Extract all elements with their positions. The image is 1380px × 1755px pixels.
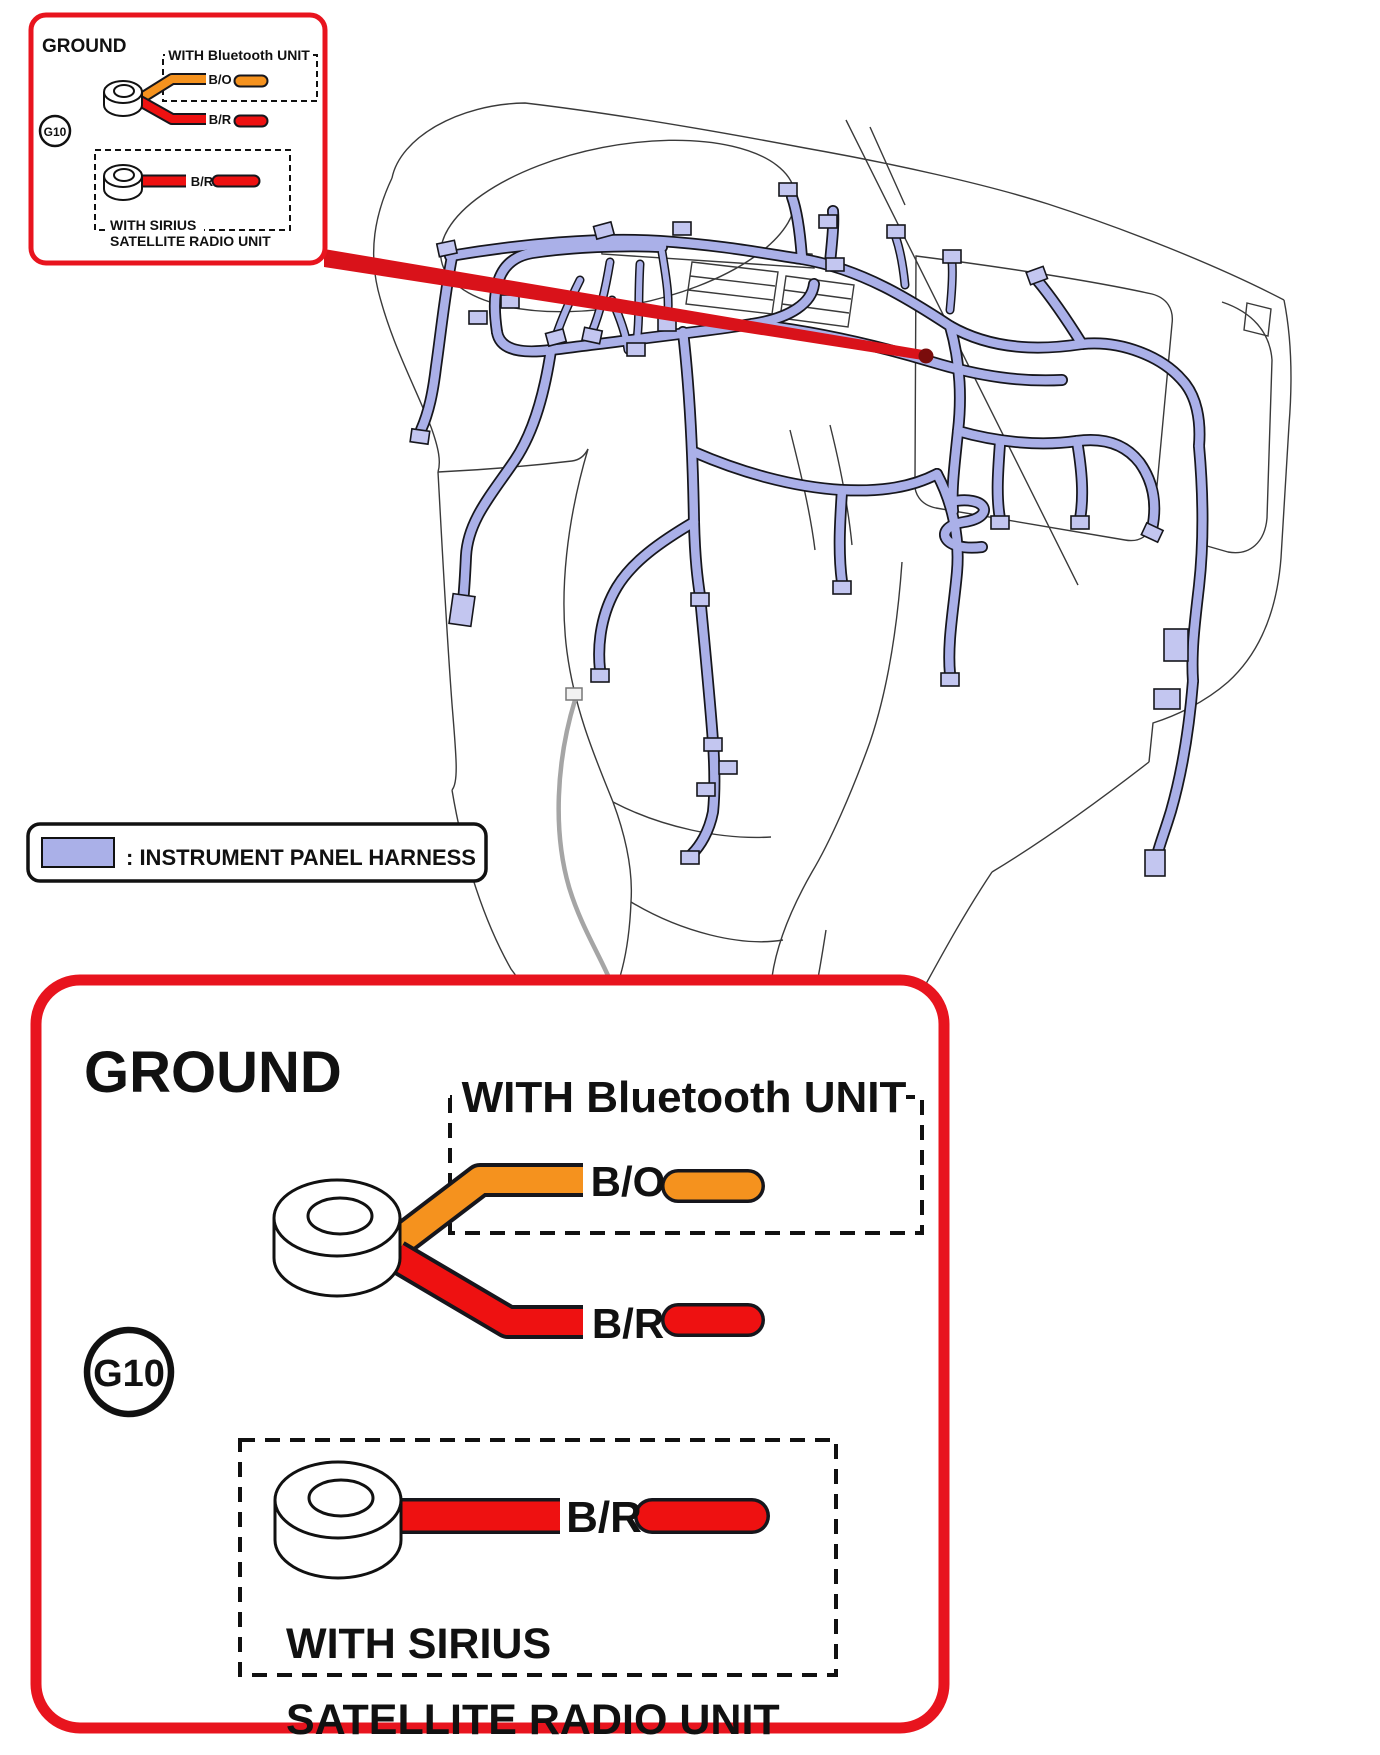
ground-id-badge-large: G10 — [87, 1330, 171, 1414]
wire-label-br-sirius-large: B/R — [566, 1493, 642, 1542]
wire-label-bo-large: B/O — [591, 1158, 666, 1205]
wire-label-br-large: B/R — [592, 1300, 664, 1347]
bluetooth-unit-label: WITH Bluetooth UNIT — [168, 47, 310, 63]
antenna-cable — [559, 688, 619, 1004]
wire-label-bo: B/O — [208, 72, 231, 87]
wiring-diagram-page: GROUND WITH Bluetooth UNIT — [0, 0, 1380, 1755]
ring-terminal-1-large — [274, 1180, 400, 1296]
bottom-callout: GROUND WITH Bluetooth UNIT — [36, 980, 944, 1744]
ring-terminal-1 — [104, 81, 142, 116]
bluetooth-unit-label-large: WITH Bluetooth UNIT — [462, 1073, 907, 1122]
legend: : INSTRUMENT PANEL HARNESS — [28, 824, 486, 881]
sirius-label-line2-large: SATELLITE RADIO UNIT — [286, 1696, 780, 1744]
svg-text:G10: G10 — [93, 1353, 165, 1395]
top-callout: GROUND WITH Bluetooth UNIT — [31, 15, 325, 263]
footwell-outline — [564, 449, 631, 1018]
legend-label: : INSTRUMENT PANEL HARNESS — [126, 845, 476, 870]
leader-tip — [919, 349, 934, 364]
sirius-label-line1: WITH SIRIUS — [110, 217, 196, 233]
ground-title: GROUND — [42, 36, 126, 57]
ground-title-large: GROUND — [84, 1040, 342, 1105]
ring-terminal-2-large — [275, 1462, 401, 1578]
ring-terminal-2 — [104, 165, 142, 200]
legend-swatch — [42, 838, 114, 867]
sirius-label-line1-large: WITH SIRIUS — [286, 1620, 551, 1668]
svg-text:G10: G10 — [44, 125, 67, 139]
ground-id-badge: G10 — [40, 116, 70, 146]
diagram-canvas: GROUND WITH Bluetooth UNIT — [0, 0, 1380, 1755]
wire-label-br-sirius: B/R — [191, 174, 214, 189]
sirius-label-line2: SATELLITE RADIO UNIT — [110, 233, 271, 249]
wire-label-br: B/R — [209, 112, 232, 127]
